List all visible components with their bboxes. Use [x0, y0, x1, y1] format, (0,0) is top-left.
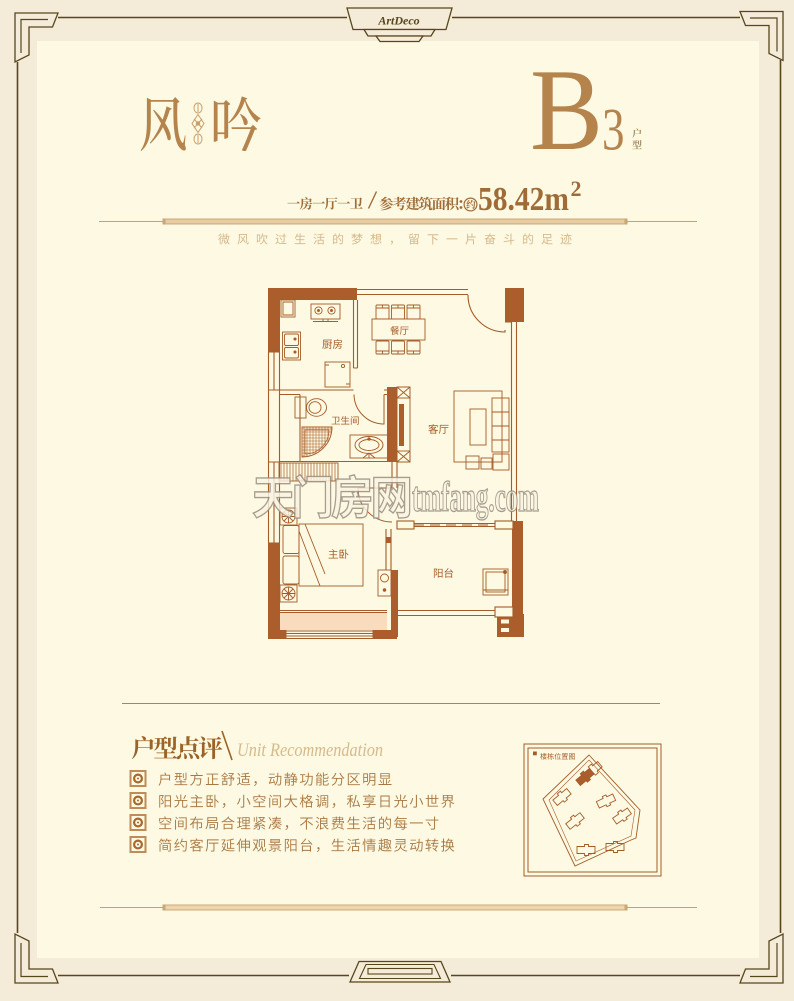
svg-text:tmfang.com: tmfang.com	[412, 475, 539, 521]
svg-text:58.42m: 58.42m	[478, 181, 569, 218]
svg-text:2: 2	[571, 176, 582, 201]
svg-text:ArtDeco: ArtDeco	[377, 14, 419, 28]
svg-text:B: B	[530, 46, 603, 175]
svg-text:3: 3	[602, 97, 625, 163]
svg-text:Unit Recommendation: Unit Recommendation	[237, 740, 383, 761]
